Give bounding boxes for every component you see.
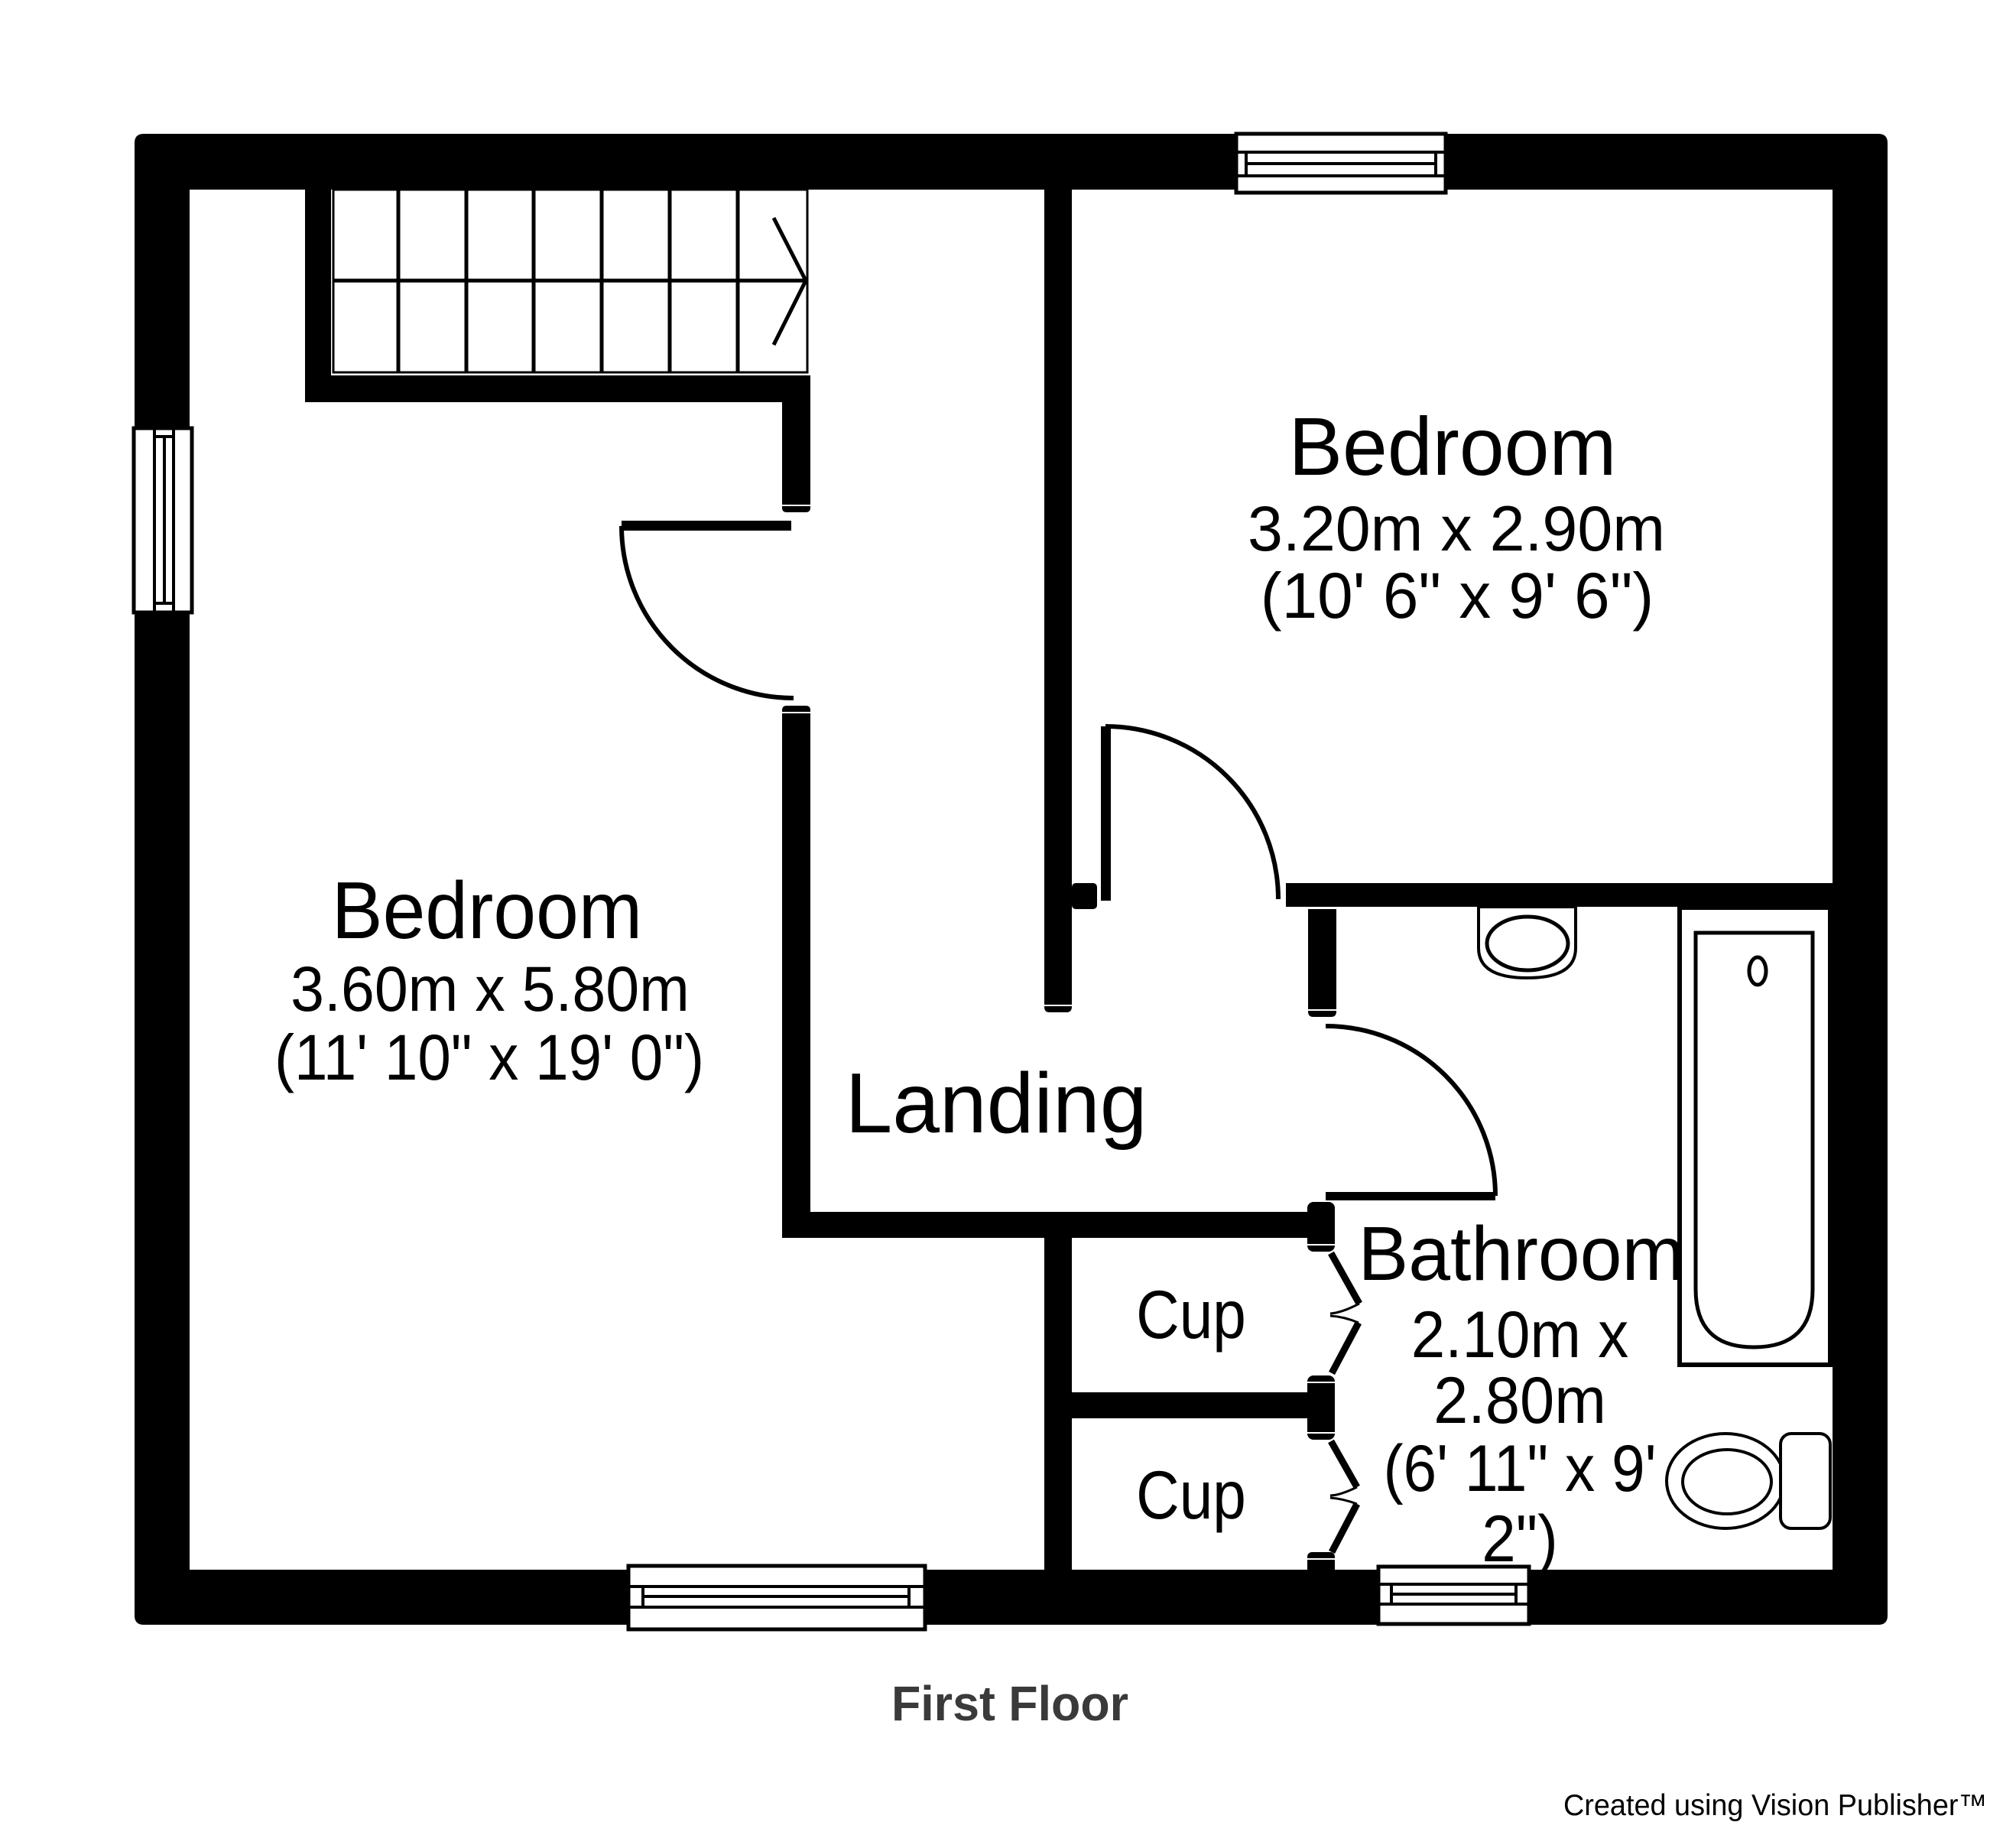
svg-text:2.10m x: 2.10m x [1411,1297,1628,1371]
svg-text:(6' 11" x 9': (6' 11" x 9' [1383,1432,1656,1505]
svg-text:Bedroom: Bedroom [1289,400,1617,492]
svg-text:Cup: Cup [1136,1457,1246,1533]
svg-text:(10' 6" x 9' 6"): (10' 6" x 9' 6") [1261,560,1654,632]
svg-text:2.80m: 2.80m [1433,1363,1606,1437]
svg-text:Bedroom: Bedroom [332,865,642,955]
svg-text:3.20m x 2.90m: 3.20m x 2.90m [1248,492,1665,564]
svg-text:First Floor: First Floor [891,1677,1128,1731]
svg-text:Cup: Cup [1136,1276,1246,1353]
svg-text:(11' 10" x 19' 0"): (11' 10" x 19' 0") [274,1022,704,1093]
svg-text:Created using Vision Publisher: Created using Vision Publisher™ [1563,1788,1987,1822]
svg-text:Landing: Landing [845,1056,1147,1151]
svg-text:2"): 2") [1482,1502,1558,1575]
svg-text:Bathroom: Bathroom [1358,1211,1684,1297]
svg-text:3.60m x 5.80m: 3.60m x 5.80m [291,953,690,1025]
